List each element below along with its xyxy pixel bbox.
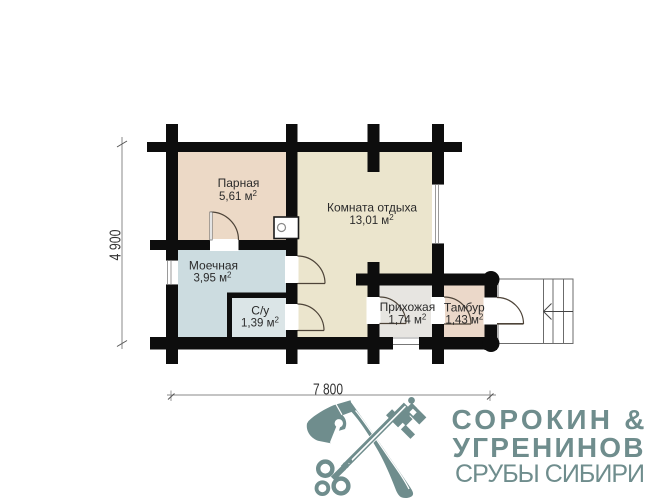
- svg-text:13,01 м2: 13,01 м2: [349, 213, 394, 227]
- svg-text:Комната отдыха: Комната отдыха: [327, 200, 417, 214]
- svg-text:С/у: С/у: [251, 303, 269, 317]
- svg-text:1,39 м2: 1,39 м2: [241, 315, 279, 329]
- svg-text:Парная: Парная: [218, 176, 260, 190]
- svg-text:4 900: 4 900: [108, 229, 125, 260]
- svg-text:5,61 м2: 5,61 м2: [219, 189, 257, 203]
- svg-text:3,95 м2: 3,95 м2: [194, 271, 232, 285]
- svg-text:7 800: 7 800: [313, 381, 343, 398]
- svg-text:СОРОКИН &: СОРОКИН &: [452, 404, 645, 435]
- svg-text:1,74 м2: 1,74 м2: [388, 313, 426, 327]
- svg-text:УГРЕНИНОВ: УГРЕНИНОВ: [453, 432, 644, 463]
- svg-text:1,43 м2: 1,43 м2: [445, 313, 483, 327]
- svg-text:Прихожая: Прихожая: [380, 300, 436, 314]
- svg-text:СРУБЫ СИБИРИ: СРУБЫ СИБИРИ: [455, 460, 645, 488]
